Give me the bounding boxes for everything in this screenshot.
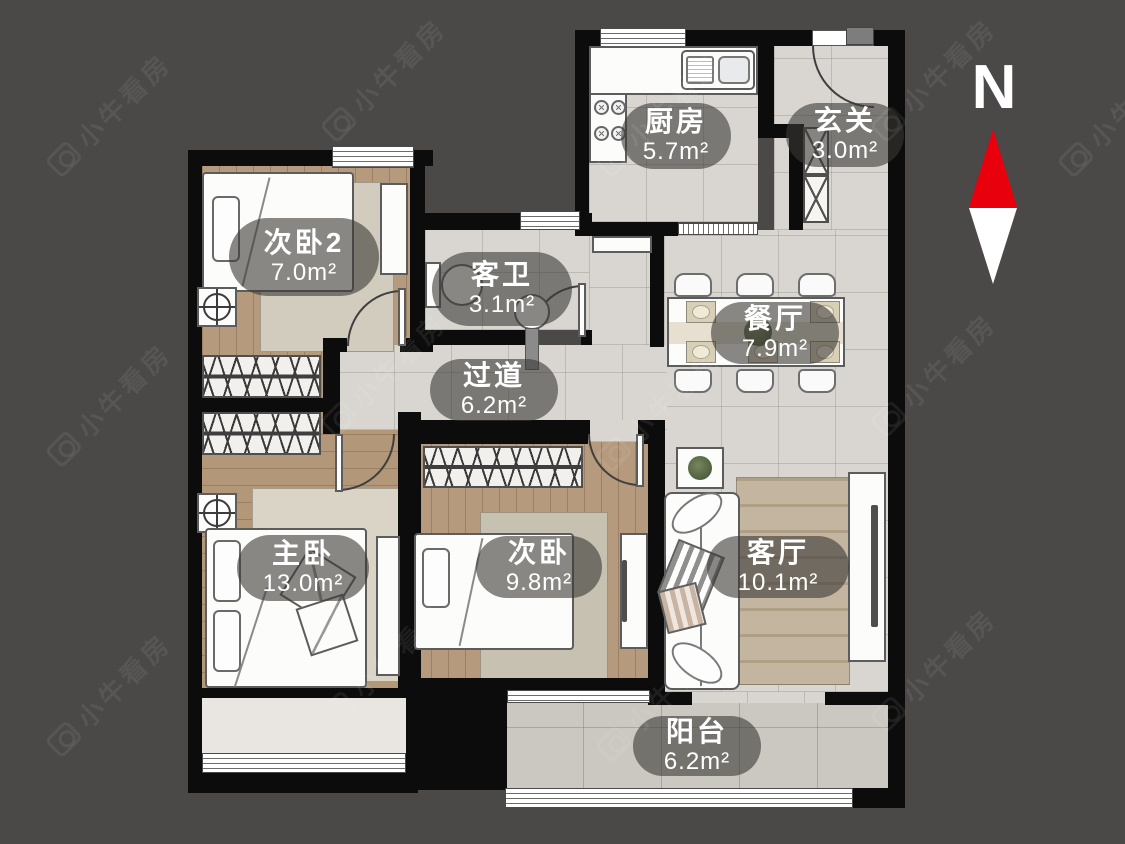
room-area: 7.0m² <box>271 259 337 288</box>
room-label-bedroom: 次卧 9.8m² <box>476 536 602 598</box>
dining-chair-top-3 <box>798 273 836 297</box>
wall-balcony-left-block <box>412 690 507 790</box>
room-label-hallway: 过道 6.2m² <box>430 359 558 421</box>
wall-corner-bottom-right <box>853 788 905 808</box>
room-name: 玄关 <box>814 105 876 137</box>
room-area: 13.0m² <box>263 570 344 599</box>
room-label-living: 客厅 10.1m² <box>707 536 849 598</box>
watermark-text: 小牛看房 <box>68 334 179 445</box>
room-label-dining: 餐厅 7.9m² <box>711 302 839 364</box>
wall-dining-left <box>650 222 664 347</box>
room-name: 餐厅 <box>744 303 806 335</box>
room-label-master-bedroom: 主卧 13.0m² <box>237 535 369 601</box>
wall-living-bottom-left <box>648 692 692 705</box>
wall-bedroom-top <box>412 430 588 444</box>
wardrobe-bedroom2 <box>202 355 321 398</box>
shoe-cabinet <box>592 236 652 253</box>
room-name: 主卧 <box>272 538 334 570</box>
door-panel-bathroom <box>578 283 586 337</box>
room-area: 7.9m² <box>742 335 808 364</box>
room-name: 次卧2 <box>264 227 345 259</box>
compass-needle-north <box>969 129 1017 207</box>
wall-kitchen-left <box>575 30 589 236</box>
watermark-logo-icon <box>44 720 83 759</box>
watermark: 小牛看房 <box>315 9 454 148</box>
compass-north-label: N <box>968 52 1020 123</box>
dining-chair-top-1 <box>674 273 712 297</box>
watermark: 小牛看房 <box>40 624 179 763</box>
room-area: 3.0m² <box>812 137 878 166</box>
nightstand-bedroom2 <box>380 183 408 275</box>
floor-bay-window <box>202 695 408 757</box>
door-panel-bedroom <box>636 434 644 487</box>
watermark-logo-icon <box>44 140 83 179</box>
window-bedroom-slider <box>507 690 650 703</box>
watermark-text: 小牛看房 <box>1080 44 1125 155</box>
door-panel-bedroom2 <box>398 288 406 346</box>
window-bay-bottom <box>202 753 406 773</box>
room-name: 次卧 <box>508 537 570 569</box>
room-area: 10.1m² <box>738 569 819 598</box>
wardrobe-bedroom <box>423 446 583 488</box>
tv-living <box>871 505 878 627</box>
watermark-logo-icon <box>319 105 358 144</box>
side-table-plant <box>688 456 712 480</box>
door-kitchen-sliding <box>678 223 758 235</box>
window-bathroom-top <box>520 211 580 230</box>
door-panel-entry <box>846 27 874 45</box>
tv-cabinet-living <box>848 472 886 662</box>
tv-bedroom <box>622 560 627 622</box>
room-name: 厨房 <box>645 106 707 138</box>
dresser-master <box>376 536 400 676</box>
kitchen-sink-basin-left <box>686 56 714 84</box>
watermark-text: 小牛看房 <box>343 9 454 120</box>
room-label-kitchen: 厨房 5.7m² <box>621 103 731 169</box>
wall-bedroom2-door-stub-left <box>337 338 347 352</box>
wall-master-bottom <box>188 688 414 698</box>
wall-living-bottom-right <box>825 692 888 705</box>
floorplan-canvas: 次卧2 7.0m² 客卫 3.1m² 厨房 5.7m² 玄关 3.0m² 餐厅 … <box>0 0 1125 844</box>
dining-chair-top-2 <box>736 273 774 297</box>
entry-closet-lower <box>803 175 829 223</box>
room-name: 客卫 <box>471 259 533 291</box>
room-name: 客厅 <box>747 537 809 569</box>
wall-bedroom2-bottom <box>188 398 338 412</box>
wall-bay-bottom <box>188 771 418 793</box>
pillow-bedroom <box>422 548 450 608</box>
compass-needle-south <box>969 208 1017 284</box>
window-balcony-railing <box>505 788 853 808</box>
door-panel-master <box>335 434 343 492</box>
placemat-1 <box>686 301 716 323</box>
wall-hall-left <box>323 338 340 434</box>
room-area: 9.8m² <box>506 569 572 598</box>
watermark-text: 小牛看房 <box>893 599 1004 710</box>
window-bedroom2-top <box>332 146 414 168</box>
room-area: 6.2m² <box>664 748 730 777</box>
watermark-logo-icon <box>44 430 83 469</box>
pillow-master-2 <box>213 610 241 672</box>
ceiling-light-icon-bedroom2 <box>203 293 231 321</box>
watermark-text: 小牛看房 <box>893 304 1004 415</box>
watermark: 小牛看房 <box>40 334 179 473</box>
kitchen-sink-basin-right <box>718 56 750 84</box>
stove-burner-3 <box>594 126 609 141</box>
room-name: 过道 <box>463 360 525 392</box>
wall-bedroom2-right <box>410 166 425 352</box>
room-label-balcony: 阳台 6.2m² <box>633 716 761 776</box>
window-kitchen-top <box>600 28 686 48</box>
room-label-entry: 玄关 3.0m² <box>786 103 904 167</box>
dining-chair-bottom-3 <box>798 369 836 393</box>
ceiling-light-icon-master <box>203 499 231 527</box>
watermark-logo-icon <box>1056 140 1095 179</box>
room-area: 3.1m² <box>469 291 535 320</box>
room-area: 6.2m² <box>461 392 527 421</box>
watermark: 小牛看房 <box>40 44 179 183</box>
room-label-bathroom: 客卫 3.1m² <box>432 252 572 326</box>
wall-living-left <box>648 430 665 692</box>
room-name: 阳台 <box>666 716 728 748</box>
wardrobe-master <box>202 412 321 455</box>
watermark: 小牛看房 <box>1052 44 1125 183</box>
stove-burner-1 <box>594 100 609 115</box>
dining-chair-bottom-2 <box>736 369 774 393</box>
placemat-3 <box>686 341 716 363</box>
watermark-text: 小牛看房 <box>68 624 179 735</box>
dining-chair-bottom-1 <box>674 369 712 393</box>
room-label-bedroom2: 次卧2 7.0m² <box>229 218 379 296</box>
room-area: 5.7m² <box>643 138 709 167</box>
stove-burner-2 <box>611 100 626 115</box>
watermark-text: 小牛看房 <box>68 44 179 155</box>
